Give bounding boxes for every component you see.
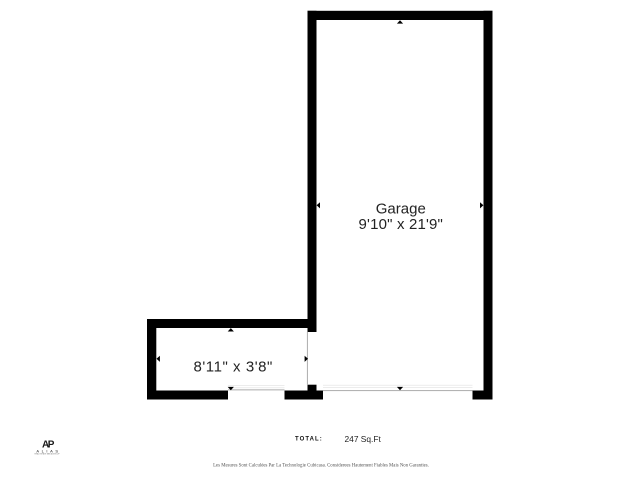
svg-text:9'10" x 21'9": 9'10" x 21'9" [359,216,443,233]
svg-text:8'11" x 3'8": 8'11" x 3'8" [193,359,272,376]
svg-text:REAL ESTATE MEDIA GROUP: REAL ESTATE MEDIA GROUP [34,452,60,455]
svg-text:Les Mesures Sont Calculées Par: Les Mesures Sont Calculées Par La Techno… [213,464,429,469]
svg-text:TOTAL:: TOTAL: [295,437,323,443]
svg-text:247 Sq.Ft: 247 Sq.Ft [345,434,382,444]
